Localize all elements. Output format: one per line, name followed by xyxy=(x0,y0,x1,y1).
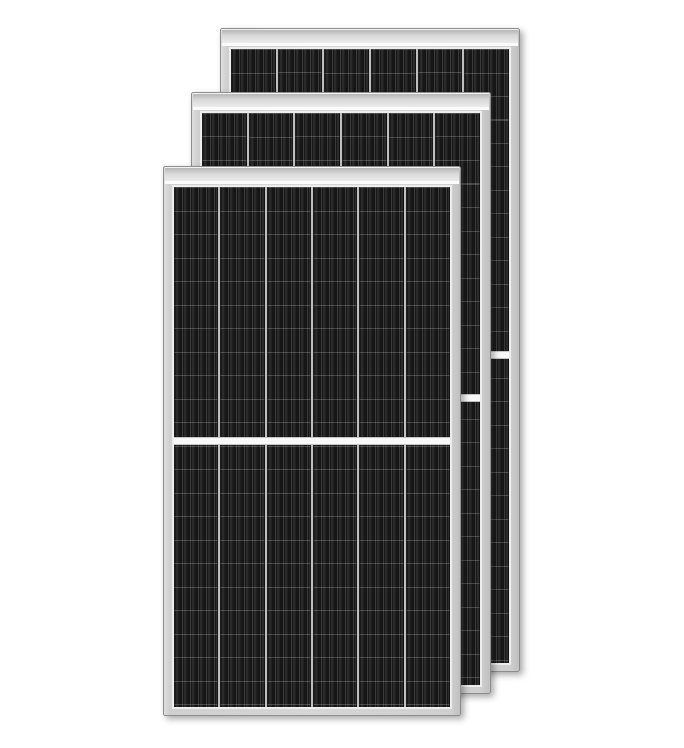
cell-column xyxy=(313,187,357,707)
frame-top-rail xyxy=(165,168,459,184)
solar-panel-stack xyxy=(0,0,684,748)
half-cell-divider xyxy=(174,437,450,445)
cell-column xyxy=(359,187,403,707)
cell-column xyxy=(174,187,218,707)
solar-panel-front xyxy=(163,166,461,716)
cell-grid xyxy=(172,185,452,709)
frame-top-rail xyxy=(193,94,489,110)
cell-column xyxy=(220,187,264,707)
cell-column xyxy=(267,187,311,707)
frame-top-rail xyxy=(222,30,518,46)
cell-column xyxy=(406,187,450,707)
